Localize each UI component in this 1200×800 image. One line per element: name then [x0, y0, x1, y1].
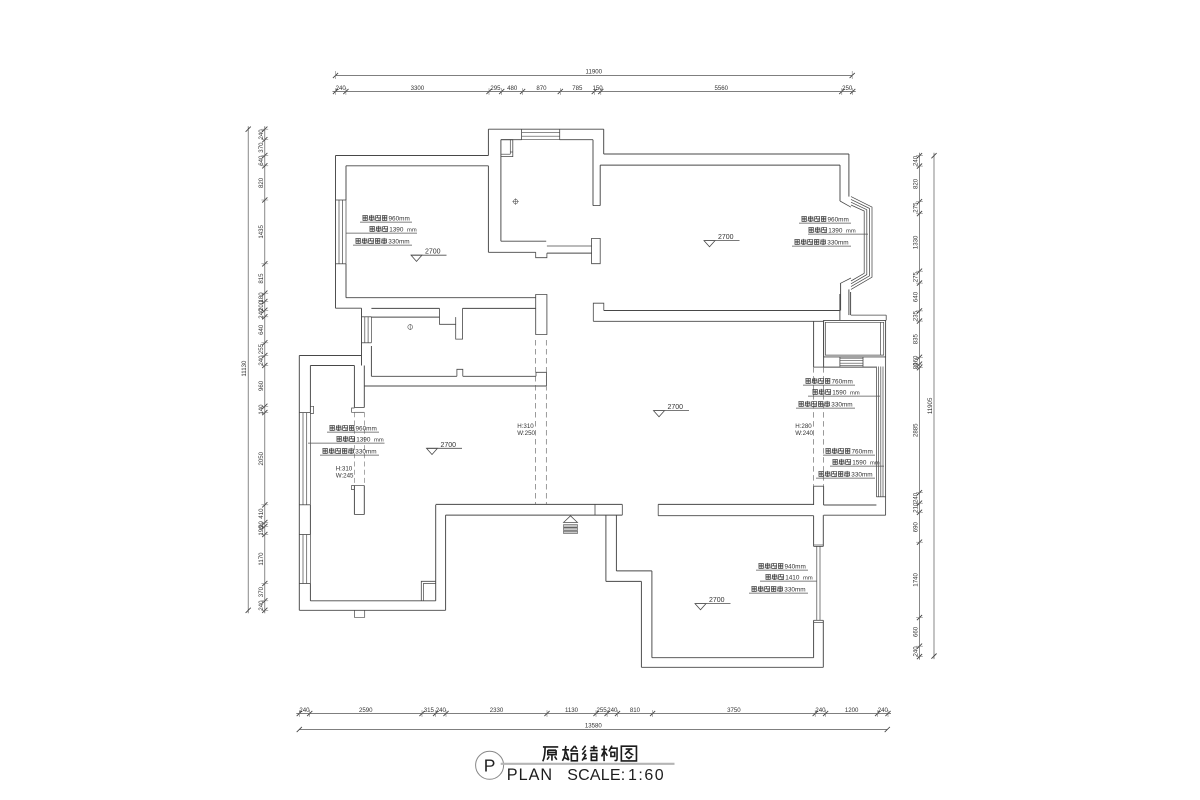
svg-text:P: P [484, 756, 496, 776]
svg-text:PLAN: PLAN [507, 766, 553, 784]
svg-text:275: 275 [913, 202, 920, 213]
svg-text:80: 80 [913, 362, 920, 369]
svg-text:1:60: 1:60 [628, 767, 665, 784]
svg-text:240: 240 [299, 707, 310, 714]
svg-text:1390: 1390 [356, 437, 371, 444]
svg-text:2700: 2700 [709, 597, 725, 604]
svg-text:5560: 5560 [715, 85, 729, 92]
svg-text:250: 250 [842, 85, 853, 92]
svg-text:240: 240 [913, 492, 920, 503]
svg-text:13580: 13580 [585, 722, 603, 729]
svg-text:1435: 1435 [258, 225, 265, 239]
svg-text:240: 240 [607, 707, 618, 714]
svg-text:820: 820 [258, 177, 265, 188]
svg-text:785: 785 [572, 85, 583, 92]
svg-text:480: 480 [507, 85, 518, 92]
svg-text:410: 410 [258, 508, 265, 519]
svg-text:820: 820 [913, 178, 920, 189]
svg-text:960mm: 960mm [389, 216, 410, 223]
svg-text:3300: 3300 [411, 85, 425, 92]
svg-text:1130: 1130 [565, 707, 579, 714]
svg-text:370: 370 [258, 586, 265, 597]
svg-text:240: 240 [913, 646, 920, 657]
svg-text:760mm: 760mm [852, 449, 873, 456]
svg-text:690: 690 [913, 522, 920, 533]
svg-text:240: 240 [258, 355, 265, 366]
svg-text:235: 235 [913, 310, 920, 321]
svg-text:11905: 11905 [927, 397, 934, 414]
svg-text:240: 240 [878, 707, 889, 714]
svg-text:H:280: H:280 [795, 423, 812, 430]
svg-text:330mm: 330mm [831, 402, 852, 409]
svg-text:255: 255 [597, 707, 608, 714]
svg-text:2590: 2590 [359, 707, 373, 714]
svg-text:295: 295 [490, 85, 501, 92]
svg-text:2050: 2050 [258, 451, 265, 465]
svg-text:330mm: 330mm [827, 240, 848, 247]
svg-text:960: 960 [258, 380, 265, 391]
svg-text:810: 810 [630, 707, 641, 714]
svg-text:W:250: W:250 [517, 430, 535, 437]
svg-text:3750: 3750 [727, 707, 741, 714]
svg-text:960mm: 960mm [356, 426, 377, 433]
svg-text:2700: 2700 [668, 404, 684, 411]
svg-text:640: 640 [913, 291, 920, 302]
svg-text:240: 240 [258, 308, 265, 319]
svg-text:11900: 11900 [586, 68, 603, 75]
svg-text:2700: 2700 [425, 249, 441, 256]
svg-text:640: 640 [258, 324, 265, 335]
svg-text:760mm: 760mm [832, 379, 853, 386]
svg-text:640: 640 [258, 155, 265, 166]
svg-text:255: 255 [258, 343, 265, 354]
svg-text:660: 660 [913, 626, 920, 637]
svg-text:2700: 2700 [441, 442, 457, 449]
svg-text:370: 370 [258, 142, 265, 153]
svg-text:1330: 1330 [913, 235, 920, 249]
svg-text:1390: 1390 [828, 228, 843, 235]
svg-text:870: 870 [536, 85, 547, 92]
svg-text:275: 275 [913, 272, 920, 283]
svg-text:H:310: H:310 [336, 466, 353, 473]
svg-text:1200: 1200 [845, 707, 859, 714]
svg-text:210: 210 [913, 502, 920, 513]
svg-text:330mm: 330mm [355, 449, 376, 456]
svg-text:315: 315 [424, 707, 435, 714]
svg-text:815: 815 [258, 273, 265, 284]
svg-text:240: 240 [913, 155, 920, 166]
svg-text:150: 150 [593, 85, 604, 92]
svg-text:240: 240 [815, 707, 826, 714]
svg-text:240: 240 [336, 85, 347, 92]
svg-text:2700: 2700 [718, 234, 734, 241]
svg-text:960mm: 960mm [828, 217, 849, 224]
svg-text:H:310: H:310 [517, 423, 534, 430]
svg-text:1410: 1410 [785, 575, 800, 582]
svg-text:240: 240 [258, 600, 265, 611]
svg-text:330mm: 330mm [784, 587, 805, 594]
svg-text:1390: 1390 [389, 227, 404, 234]
svg-text:1170: 1170 [258, 552, 265, 566]
svg-text:1590: 1590 [852, 460, 867, 467]
svg-text:11130: 11130 [241, 360, 248, 377]
svg-text:835: 835 [913, 334, 920, 345]
svg-text:330mm: 330mm [388, 239, 409, 246]
svg-text:W:240: W:240 [795, 430, 813, 437]
svg-text:240: 240 [258, 129, 265, 140]
svg-text:2330: 2330 [490, 707, 504, 714]
svg-text:SCALE:: SCALE: [567, 767, 625, 784]
svg-text:140: 140 [258, 404, 265, 415]
svg-text:2885: 2885 [913, 423, 920, 437]
svg-text:940mm: 940mm [785, 564, 806, 571]
svg-text:190: 190 [258, 525, 265, 536]
svg-text:330mm: 330mm [851, 472, 872, 479]
svg-text:1740: 1740 [913, 573, 920, 587]
svg-text:1590: 1590 [832, 390, 847, 397]
svg-text:240: 240 [436, 707, 447, 714]
svg-text:W:245: W:245 [336, 473, 354, 480]
